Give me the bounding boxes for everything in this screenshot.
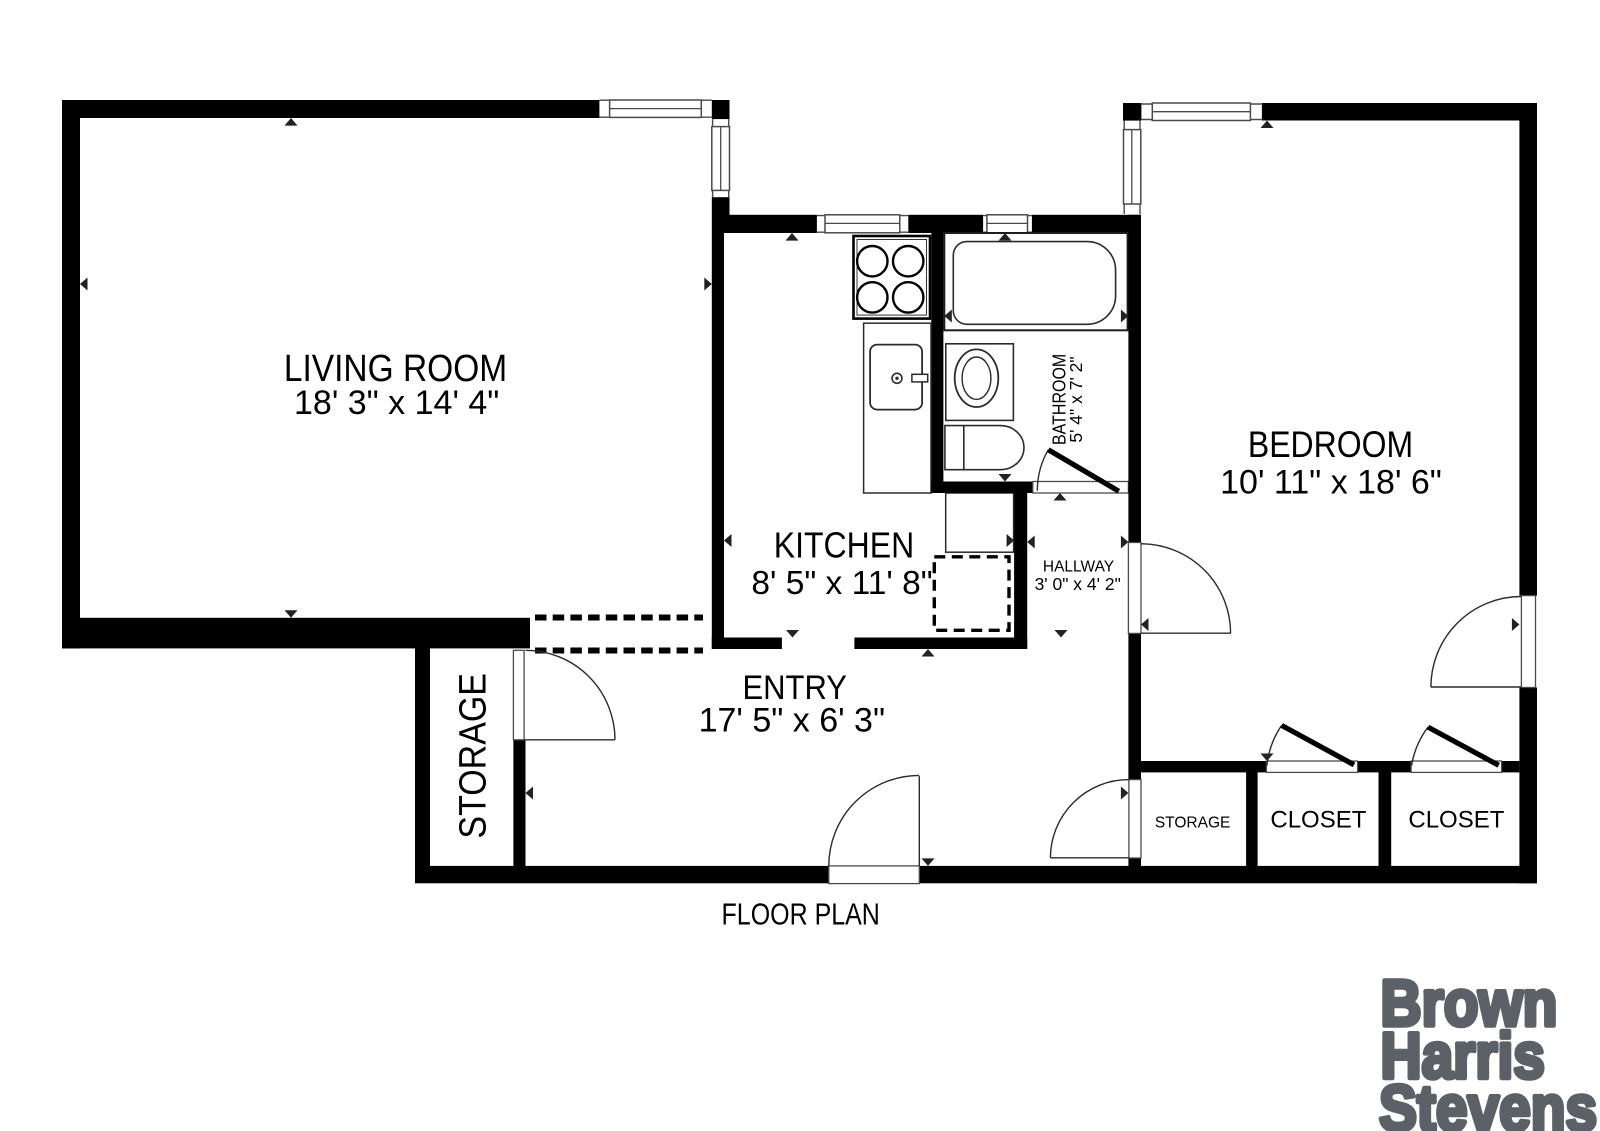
svg-text:STORAGE: STORAGE <box>451 673 494 839</box>
svg-text:HALLWAY: HALLWAY <box>1043 558 1114 575</box>
svg-text:17' 5" x 6' 3": 17' 5" x 6' 3" <box>699 702 885 740</box>
svg-text:Stevens: Stevens <box>1379 1072 1597 1131</box>
svg-text:10' 11" x 18' 6": 10' 11" x 18' 6" <box>1220 463 1442 501</box>
svg-text:18' 3" x 14' 4": 18' 3" x 14' 4" <box>294 384 499 422</box>
svg-text:LIVING ROOM: LIVING ROOM <box>284 346 507 390</box>
svg-text:STORAGE: STORAGE <box>1155 815 1231 832</box>
svg-text:CLOSET: CLOSET <box>1270 807 1366 834</box>
svg-text:5' 4" x 7' 2": 5' 4" x 7' 2" <box>1066 356 1086 442</box>
svg-text:KITCHEN: KITCHEN <box>774 526 914 566</box>
svg-text:BEDROOM: BEDROOM <box>1248 425 1413 466</box>
svg-text:FLOOR PLAN: FLOOR PLAN <box>722 897 880 931</box>
svg-text:8' 5" x 11' 8": 8' 5" x 11' 8" <box>751 565 932 602</box>
svg-text:3' 0" x 4' 2": 3' 0" x 4' 2" <box>1035 574 1121 594</box>
svg-text:CLOSET: CLOSET <box>1408 807 1504 834</box>
